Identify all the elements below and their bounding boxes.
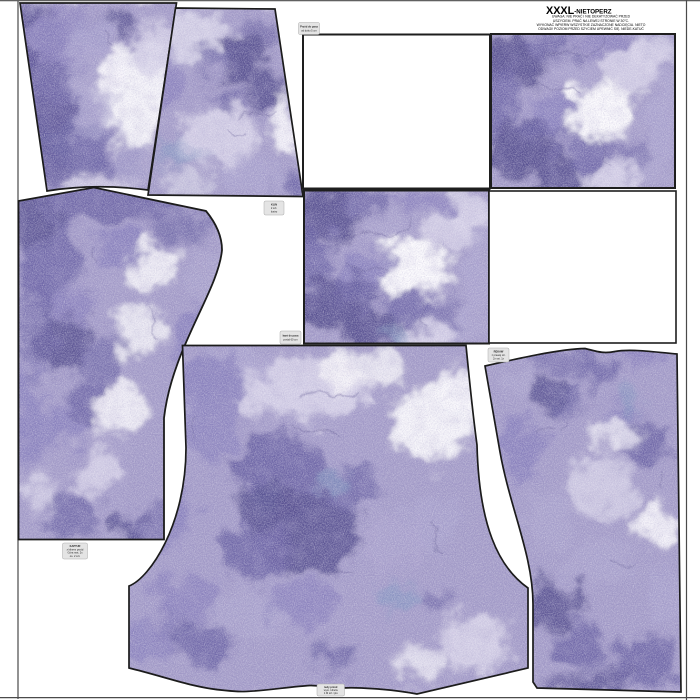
svg-text:ODWAGI! POZIOM PRZED SZYCIEM U: ODWAGI! POZIOM PRZED SZYCIEM UPEWNIĆ SIĘ… bbox=[538, 26, 644, 31]
svg-text:Przód do pasa: Przód do pasa bbox=[300, 25, 318, 29]
svg-text:przód 60 cm: przód 60 cm bbox=[283, 338, 297, 342]
svg-text:z prawej str.: z prawej str. bbox=[492, 353, 506, 357]
svg-text:RĘKAW: RĘKAW bbox=[494, 350, 504, 354]
svg-text:kant do pasa: kant do pasa bbox=[283, 333, 299, 337]
svg-text:os. 2 szt.: os. 2 szt. bbox=[70, 554, 81, 558]
svg-text:KLIN: KLIN bbox=[271, 203, 277, 207]
svg-text:2 szt.: 2 szt. bbox=[271, 206, 277, 210]
svg-text:2x szt. 1x: 2x szt. 1x bbox=[493, 357, 505, 361]
svg-text:1 M szt. tyłu: 1 M szt. tyłu bbox=[324, 691, 338, 695]
svg-text:lustro: lustro bbox=[271, 210, 278, 214]
svg-text:od doku 5 cm: od doku 5 cm bbox=[301, 29, 317, 33]
